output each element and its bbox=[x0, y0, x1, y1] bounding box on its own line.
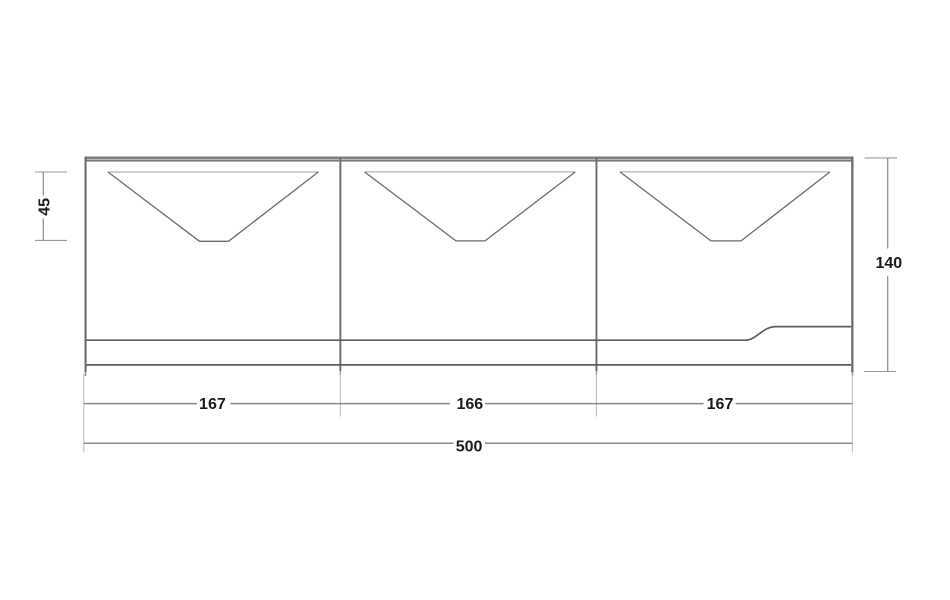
svg-text:500: 500 bbox=[456, 438, 483, 455]
svg-text:140: 140 bbox=[875, 255, 902, 272]
svg-text:166: 166 bbox=[456, 396, 483, 413]
svg-text:167: 167 bbox=[707, 396, 734, 413]
svg-text:45: 45 bbox=[37, 198, 54, 216]
svg-text:167: 167 bbox=[199, 396, 226, 413]
